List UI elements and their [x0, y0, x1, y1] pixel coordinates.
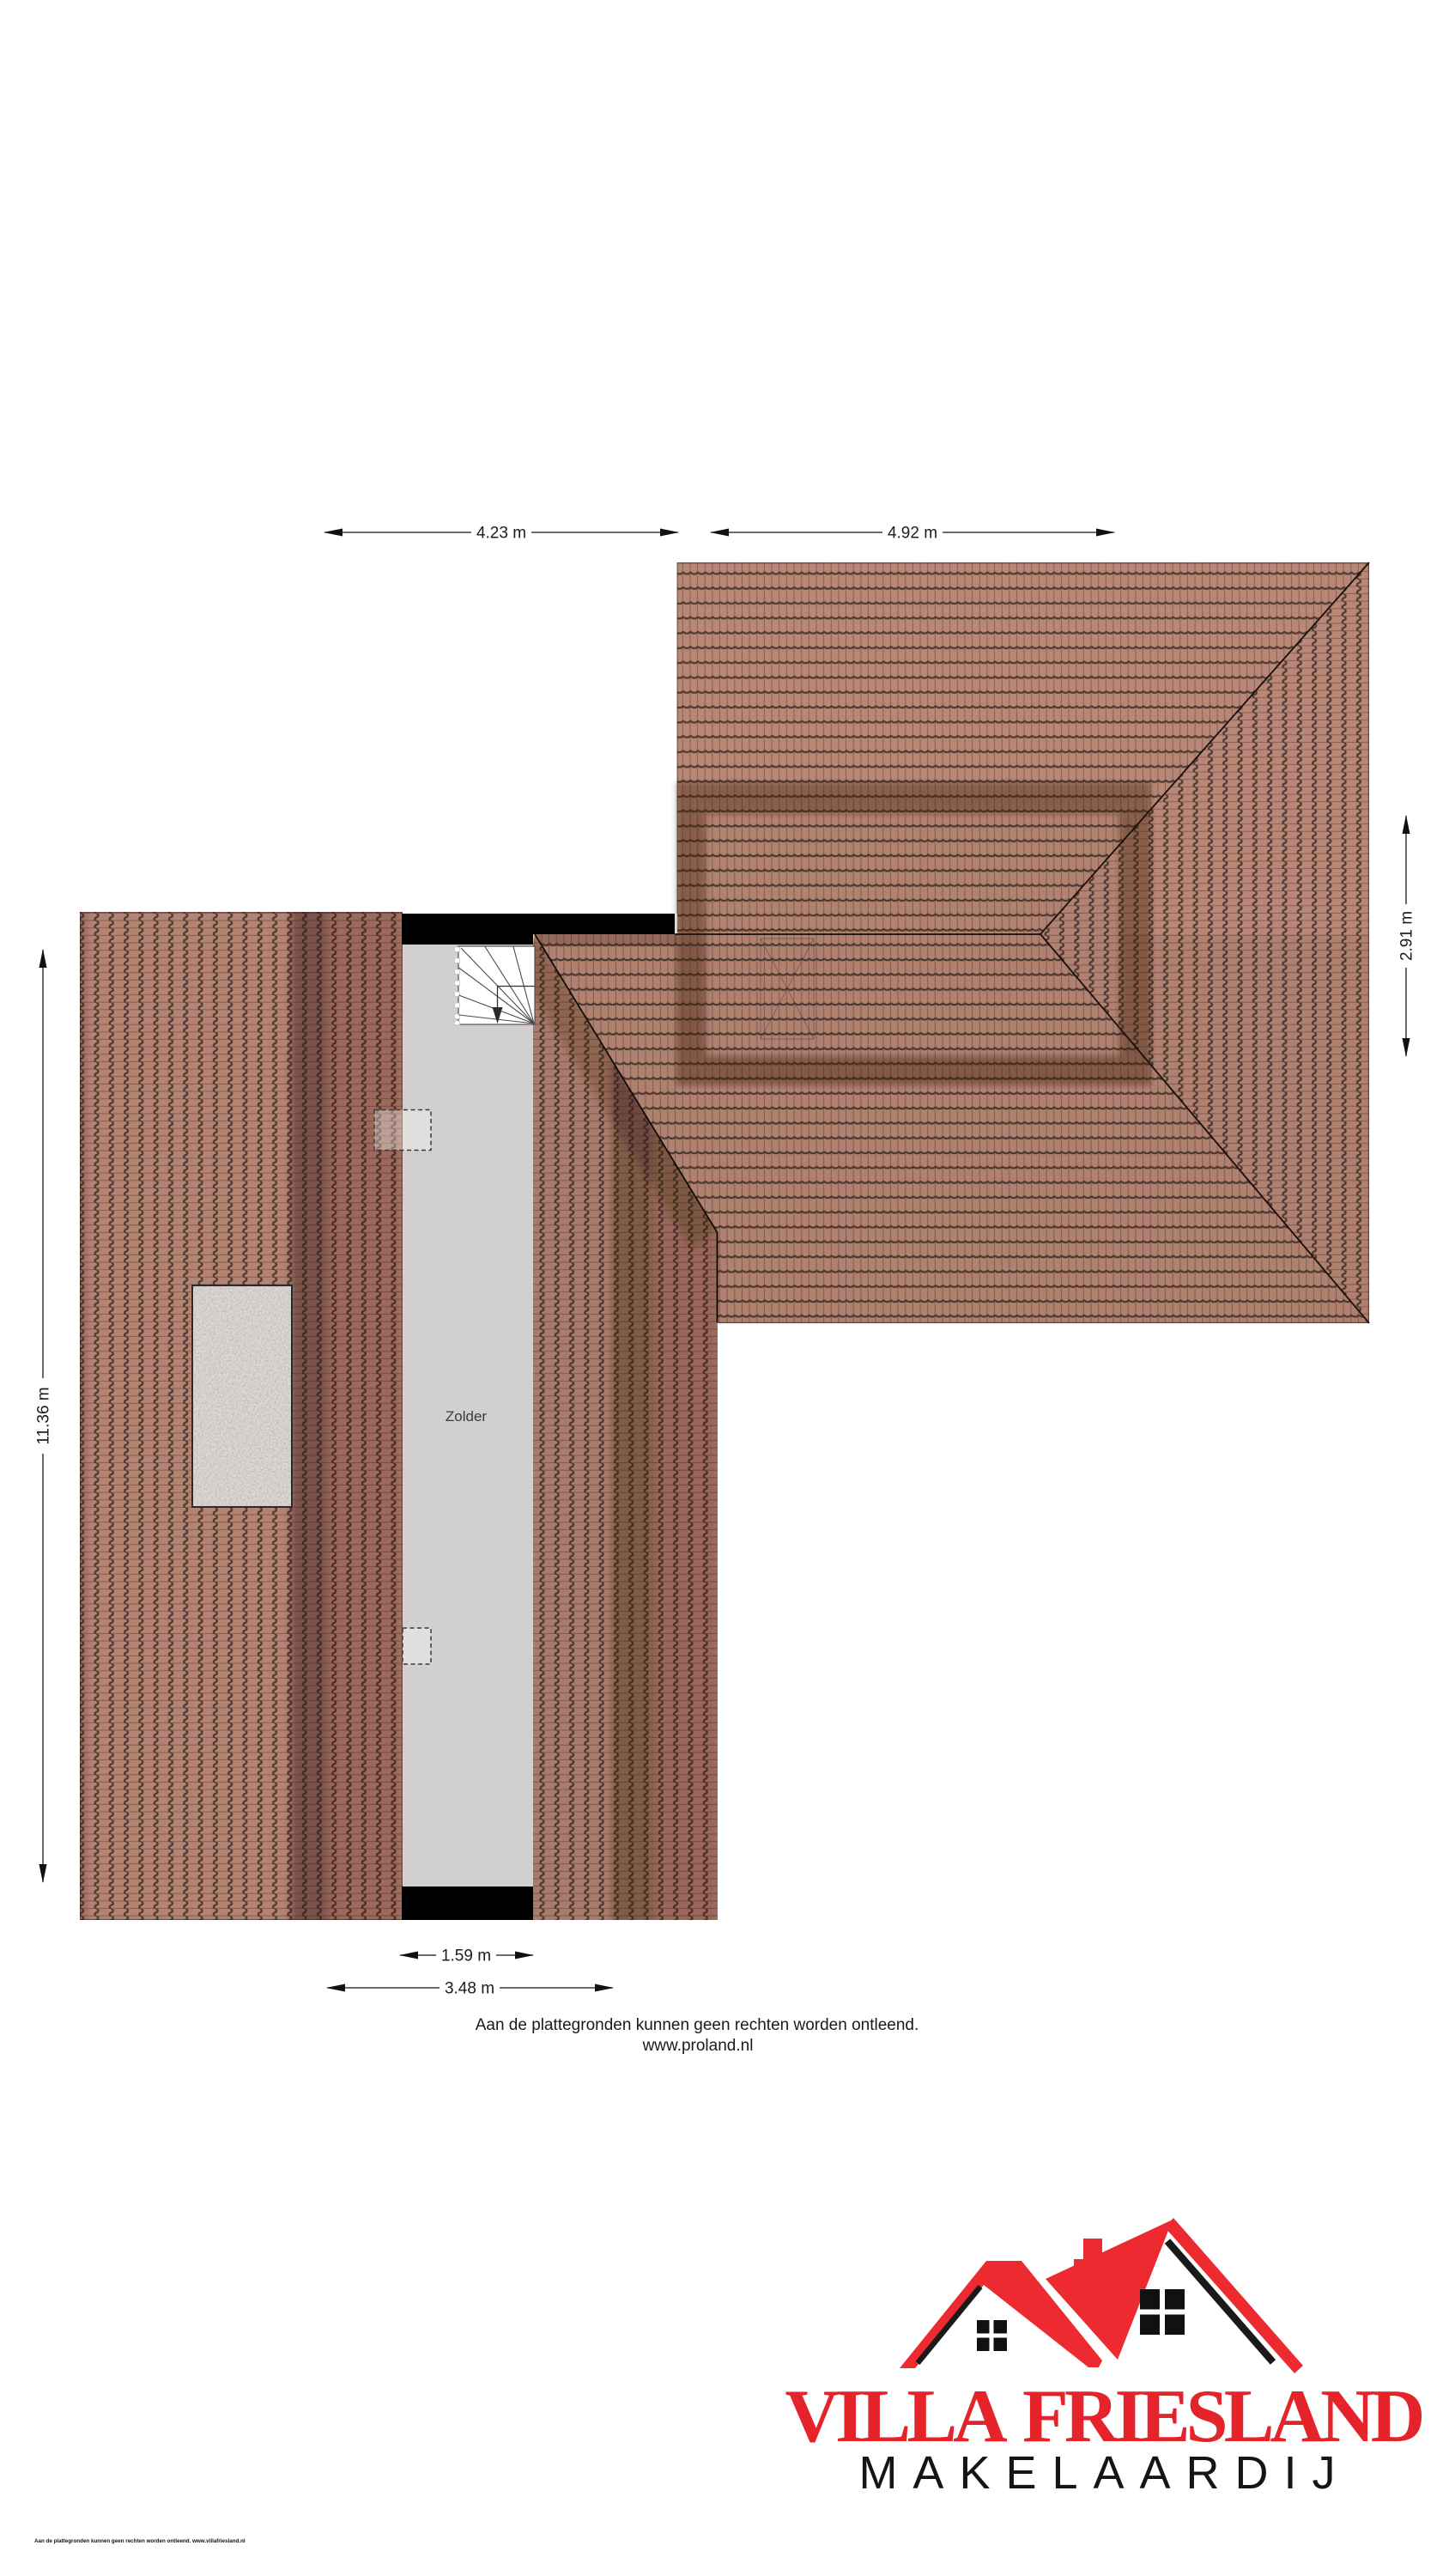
svg-text:4.92 m: 4.92 m — [888, 525, 937, 543]
svg-text:VILLA FRIESLAND: VILLA FRIESLAND — [785, 2375, 1422, 2458]
svg-text:MAKELAARDIJ: MAKELAARDIJ — [858, 2447, 1350, 2499]
svg-text:Zolder: Zolder — [446, 1408, 488, 1425]
svg-text:www.proland.nl: www.proland.nl — [642, 2037, 754, 2055]
svg-text:3.48 m: 3.48 m — [445, 1980, 494, 1998]
svg-text:Aan de plattegronden kunnen ge: Aan de plattegronden kunnen geen rechten… — [476, 2016, 919, 2034]
svg-text:Aan de plattegronden kunnen ge: Aan de plattegronden kunnen geen rechten… — [34, 2538, 246, 2544]
svg-text:11.36 m: 11.36 m — [35, 1387, 53, 1444]
svg-text:2.91 m: 2.91 m — [1398, 911, 1416, 961]
svg-text:1.59 m: 1.59 m — [441, 1947, 491, 1965]
svg-text:4.23 m: 4.23 m — [476, 525, 526, 543]
